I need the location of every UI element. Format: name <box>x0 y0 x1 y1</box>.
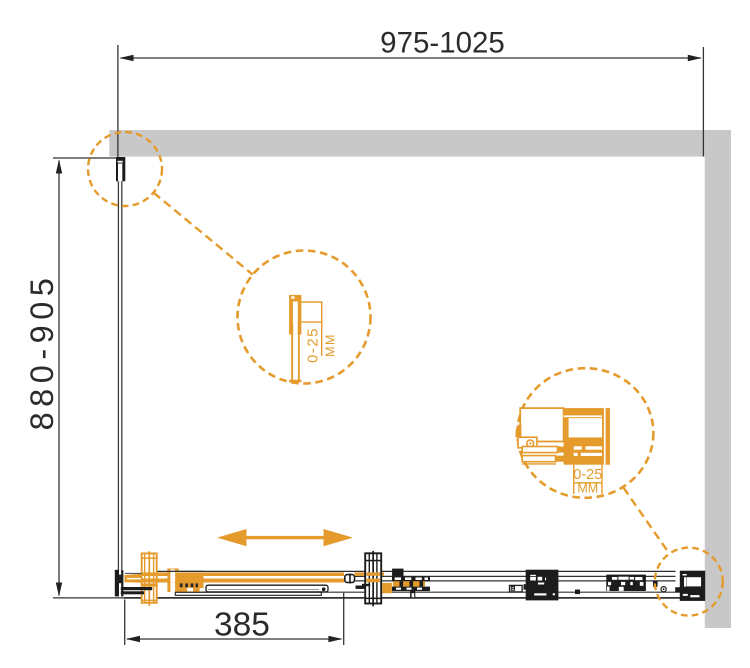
svg-text:385: 385 <box>214 607 270 644</box>
svg-text:MM: MM <box>577 482 598 496</box>
svg-text:880-905: 880-905 <box>24 273 60 431</box>
svg-text:975-1025: 975-1025 <box>380 26 505 59</box>
svg-text:MM: MM <box>324 333 338 357</box>
svg-text:0-25: 0-25 <box>305 327 322 363</box>
